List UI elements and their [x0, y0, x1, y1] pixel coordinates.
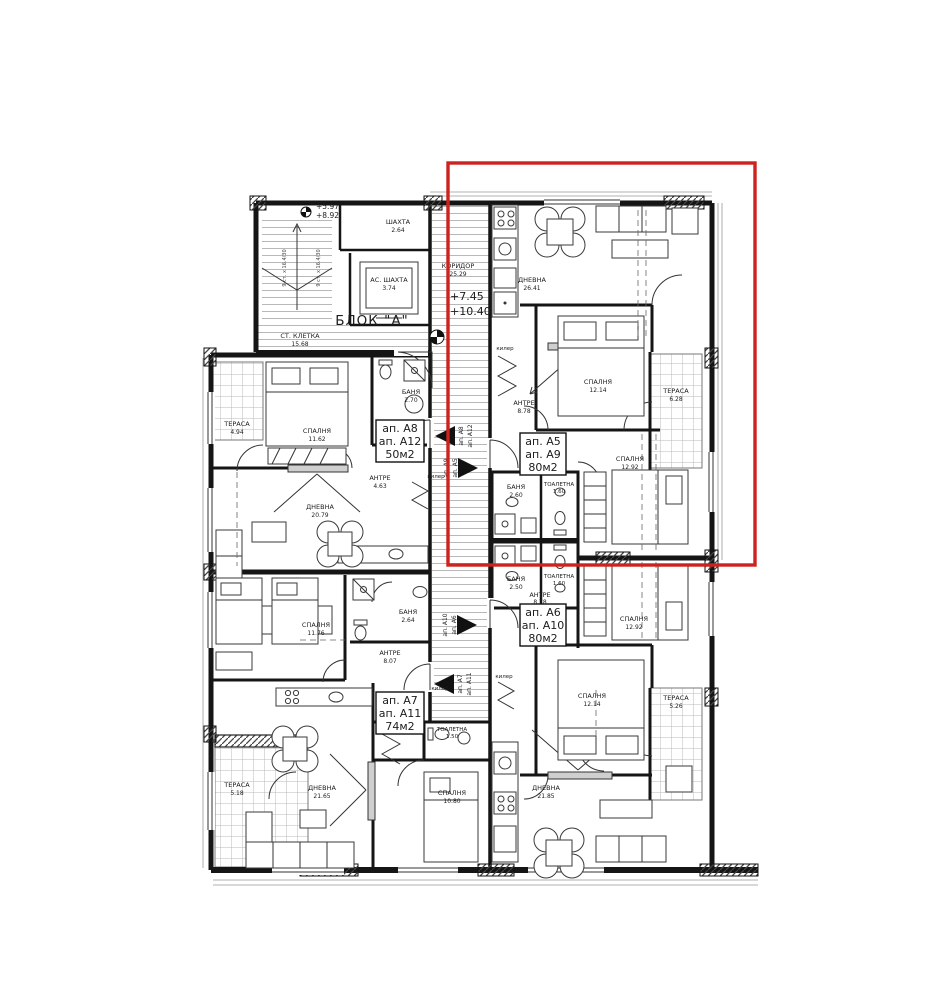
elevation-corridor-low: +7.45 [450, 290, 484, 303]
shower-icon [353, 579, 374, 600]
room-area-antre-a8: 4.63 [373, 483, 387, 490]
apartment-box-a8-a12: ап. А8 ап. А12 50м2 [376, 420, 424, 462]
room-label-bed2-a6: СПАЛНЯ [620, 615, 648, 623]
basin-icon [413, 587, 427, 598]
room-label-bed1-a7: СПАЛНЯ [302, 621, 330, 629]
room-label-wc-a5: ТОАЛЕТНА [543, 482, 575, 488]
elevation-stair-low: +5.97 [316, 202, 339, 211]
desk-icon [216, 652, 252, 670]
terrace-a5-tiles [650, 354, 702, 468]
door-arc-entry-a6 [490, 600, 518, 628]
apartment-size: 80м2 [528, 632, 557, 645]
room-area-antre-a7: 8.07 [383, 658, 397, 665]
kitchen-a6 [492, 742, 518, 862]
apartment-id: ап. А5 [525, 435, 560, 448]
room-label-bath-a6: БАНЯ [507, 575, 525, 583]
room-area-bath-a8: 2.70 [404, 397, 418, 404]
door-arc-bed2-a7 [398, 760, 424, 786]
room-area-bed1-a6: 12.14 [583, 701, 600, 708]
door-arc-living-a5 [652, 275, 682, 305]
room-label-bath-a5: БАНЯ [507, 483, 525, 491]
bed-icon [558, 316, 644, 416]
entry-arrow-label: ап. А8 [458, 426, 465, 446]
room-label-antre-a8: АНТРЕ [369, 474, 390, 482]
apartment-id: ап. А12 [379, 435, 421, 448]
entry-arrow-label: ап. А6 [451, 615, 458, 635]
room-area-antre-a6: 8.78 [533, 599, 547, 606]
bed-icon [612, 470, 688, 544]
sofa-icon [596, 836, 666, 862]
sink-icon [389, 549, 403, 559]
bed-icon [216, 578, 262, 644]
apartment-size: 74м2 [385, 720, 414, 733]
bed-icon [558, 660, 644, 760]
room-label-terrace-a6: ТЕРАСА [662, 694, 689, 702]
stove-icon [494, 207, 516, 229]
entry-arrow-label: ап. А11 [466, 672, 473, 695]
column [705, 550, 718, 572]
room-label-antre-a7: АНТРЕ [379, 649, 400, 657]
apartment-box-a5-a9: ап. А5 ап. А9 80м2 [520, 433, 566, 475]
room-area-living-a6: 21.85 [537, 793, 554, 800]
column [705, 688, 718, 706]
window [206, 772, 215, 830]
room-area-terrace-a7: 5.18 [230, 790, 244, 797]
entry-arrow-label: ап. А12 [467, 424, 474, 447]
room-label-wc-a6: ТОАЛЕТНА [543, 574, 575, 580]
room-label-terrace-a7: ТЕРАСА [223, 781, 250, 789]
bathroom-a5 [495, 488, 566, 535]
room-area-antre-a5: 8.78 [517, 408, 531, 415]
entry-arrow-label: ап. А5 [452, 458, 459, 478]
room-label-terrace-a5: ТЕРАСА [662, 387, 689, 395]
room-label-bath-a7: БАНЯ [399, 608, 417, 616]
block-label: БЛОК "А" [335, 313, 409, 329]
door-arc-entry-a7 [404, 664, 430, 690]
washer-icon [521, 546, 536, 561]
room-label-bath-a8: БАНЯ [402, 388, 420, 396]
room-area-terrace-a5: 6.28 [669, 396, 683, 403]
room-label-bed2-a5: СПАЛНЯ [616, 455, 644, 463]
sofa-icon [596, 206, 666, 232]
entry-arrow-label: ап. А10 [442, 613, 449, 636]
coffee-table-icon [600, 800, 652, 818]
room-label-bed1-a5: СПАЛНЯ [584, 378, 612, 386]
room-area-living-a5: 26.41 [523, 285, 540, 292]
room-area-bath-a5: 2.60 [509, 492, 523, 499]
lift-label: АС. ШАХТА [370, 276, 408, 284]
stair-steps-note: 9 ст. x 16.4/30 [282, 249, 288, 286]
shower-icon [495, 546, 515, 566]
window [206, 488, 215, 552]
door-arc-bath-a7 [372, 582, 392, 602]
wardrobe-icon [268, 448, 346, 464]
kitchen-a5 [492, 205, 518, 317]
closet-label-a5: килер [496, 346, 514, 352]
bathroom-a8 [379, 360, 425, 413]
column [596, 552, 630, 564]
window [398, 866, 458, 875]
washer-icon [521, 518, 536, 533]
room-area-terrace-a8: 4.94 [230, 429, 244, 436]
bed-icon [612, 566, 688, 640]
stairwell-label: СТ. КЛЕТКА [280, 332, 320, 340]
coffee-table-icon [252, 522, 286, 542]
floor-plan-page: ап. А8 ап. А12 ап. А9 ап. А5 ап. А10 ап.… [0, 0, 944, 1000]
lift-area: 3.74 [382, 285, 396, 292]
shaft-label: ШАХТА [386, 218, 411, 226]
apartment-id: ап. А6 [525, 606, 560, 619]
room-area-wc-a7: 1.50 [446, 734, 459, 740]
toilet-icon [554, 512, 566, 536]
column [424, 196, 442, 210]
room-label-bed1-a6: СПАЛНЯ [578, 692, 606, 700]
basin-icon [458, 732, 470, 744]
room-label-wc-a7: ТОАЛЕТНА [436, 727, 468, 733]
room-area-terrace-a6: 5.26 [669, 703, 683, 710]
apartment-id: ап. А7 [382, 694, 417, 707]
shower-icon [495, 514, 515, 534]
room-area-wc-a6: 1.60 [553, 581, 566, 587]
room-label-living-a6: ДНЕВНА [532, 784, 560, 792]
apartment-size: 80м2 [528, 461, 557, 474]
corridor-area: 25.29 [449, 271, 466, 278]
room-area-bed-a8: 11.62 [308, 436, 325, 443]
stove-icon [494, 792, 516, 814]
window [206, 392, 215, 444]
closet-label-a8: килер [427, 474, 445, 480]
sink-icon [494, 238, 516, 260]
closet-zigzag-a8 [412, 482, 428, 509]
room-area-bed2-a7: 10.80 [443, 798, 460, 805]
room-area-bed1-a5: 12.14 [589, 387, 606, 394]
column [664, 196, 704, 209]
level-marker-icon [430, 330, 444, 344]
dining-table-icon [535, 207, 585, 257]
window [707, 452, 716, 512]
toilet-icon [379, 360, 392, 379]
room-area-living-a8: 20.79 [311, 512, 328, 519]
apartment-box-a6-a10: ап. А6 ап. А10 80м2 [520, 604, 566, 646]
room-label-terrace-a8: ТЕРАСА [223, 420, 250, 428]
room-label-living-a8: ДНЕВНА [306, 503, 334, 511]
window [707, 582, 716, 636]
room-label-living-a7: ДНЕВНА [308, 784, 336, 792]
shower-icon [404, 360, 425, 381]
apartment-size: 50м2 [385, 448, 414, 461]
room-area-living-a7: 21.65 [313, 793, 330, 800]
floor-plan-drawing: ап. А8 ап. А12 ап. А9 ап. А5 ап. А10 ап.… [0, 0, 944, 1000]
column [700, 864, 758, 876]
entry-arrow-label: ап. А7 [457, 674, 464, 694]
room-area-bath-a7: 2.64 [401, 617, 415, 624]
coffee-table-icon [612, 240, 668, 258]
room-area-bed2-a5: 12.92 [621, 464, 638, 471]
door-arc-entry-a5 [490, 440, 518, 468]
tv-icon [330, 754, 375, 826]
sink-icon [329, 692, 343, 702]
column [250, 196, 266, 210]
closet-label-a6: килер [495, 674, 513, 680]
toilet-icon [354, 620, 367, 640]
closet-zigzag-a5 [498, 356, 516, 396]
wardrobe-icon [584, 566, 606, 636]
window [206, 592, 215, 648]
room-area-bed2-a6: 12.92 [625, 624, 642, 631]
apartment-id: ап. А9 [525, 448, 560, 461]
room-area-bed1-a7: 11.76 [307, 630, 324, 637]
stair-steps-note: 9 ст. x 16.4/30 [316, 249, 322, 286]
apartment-id: ап. А11 [379, 707, 421, 720]
room-area-wc-a5: 1.60 [553, 489, 566, 495]
room-area-bath-a6: 2.50 [509, 584, 523, 591]
wardrobe-icon [584, 472, 606, 542]
sink-icon [494, 752, 516, 774]
closet-zigzag-a6 [498, 682, 514, 709]
column [478, 864, 514, 876]
kitchen-a7 [276, 688, 372, 706]
coffee-table-icon [300, 810, 326, 828]
column [204, 726, 216, 742]
room-label-antre-a5: АНТРЕ [513, 399, 534, 407]
shaft-area: 2.64 [391, 227, 405, 234]
apartment-box-a7-a11: ап. А7 ап. А11 74м2 [376, 692, 424, 734]
elevation-stair-high: +8.92 [316, 211, 339, 220]
apartment-id: ап. А8 [382, 422, 417, 435]
column [204, 348, 216, 366]
armchair-icon [666, 766, 692, 792]
column [204, 564, 216, 580]
stairwell-area: 15.68 [291, 341, 308, 348]
apartment-id: ап. А10 [522, 619, 564, 632]
closet-label-a7: килер [431, 686, 449, 692]
room-label-bed-a8: СПАЛНЯ [303, 427, 331, 435]
level-marker-icon [301, 207, 311, 217]
room-label-living-a5: ДНЕВНА [518, 276, 546, 284]
room-label-antre-a6: АНТРЕ [529, 591, 550, 599]
armchair-icon [672, 208, 698, 234]
elevation-corridor-high: +10.40 [450, 305, 491, 318]
bed-icon [424, 772, 478, 862]
column [705, 348, 718, 368]
room-label-bed2-a7: СПАЛНЯ [438, 789, 466, 797]
